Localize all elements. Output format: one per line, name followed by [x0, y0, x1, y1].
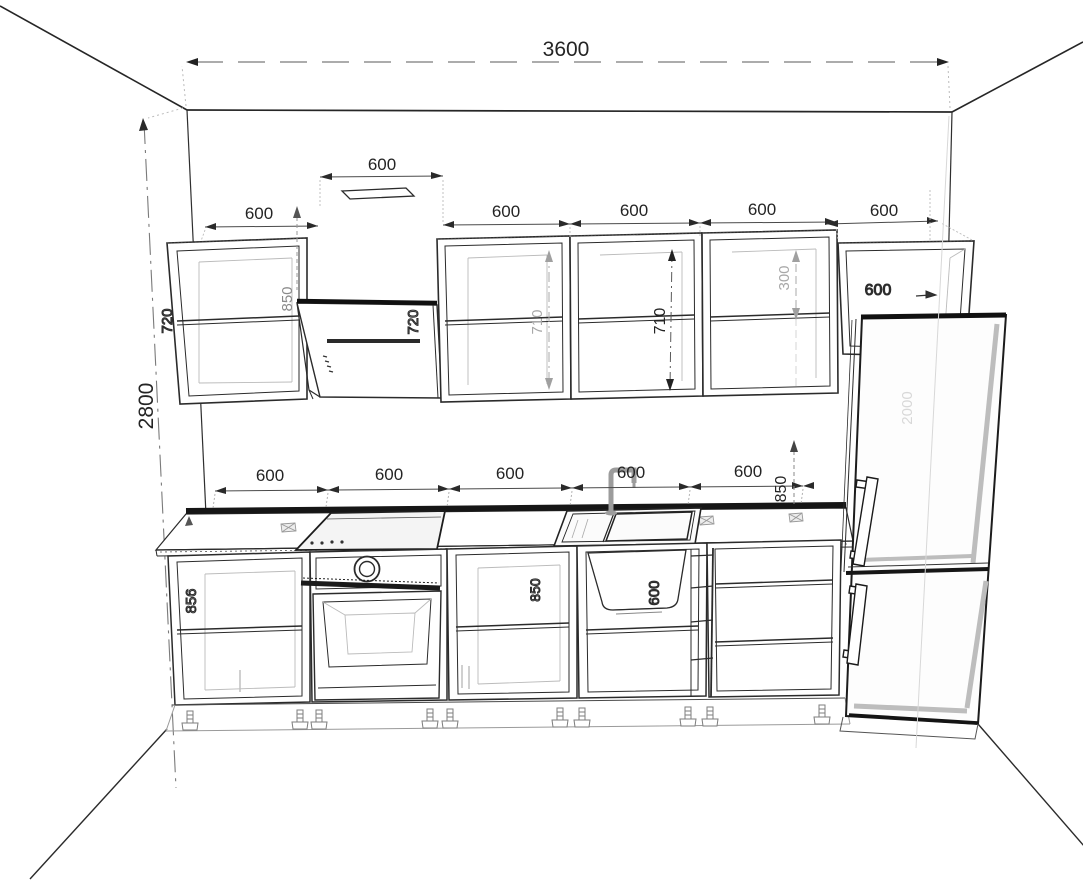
ceiling-corner-right — [952, 42, 1083, 112]
wall-cabinet-4 — [702, 230, 838, 396]
base-cabinet-5 — [691, 540, 841, 697]
base-cabinet-3: 850 — [447, 546, 577, 700]
dim-label-base2-width: 600 — [375, 465, 403, 484]
dim-label-counter-height: 850 — [773, 476, 790, 503]
dim-label-fridge-height: 2000 — [899, 391, 916, 424]
dim-label-base-carcass-height: 856 — [183, 588, 200, 613]
dim-label-fridge-cab-width: 600 — [870, 201, 898, 220]
floor-corner-left — [30, 729, 167, 879]
dim-label-cab1-width: 600 — [245, 204, 273, 223]
dim-label-hood-clearance: 850 — [279, 286, 296, 311]
fridge: 2000 — [840, 116, 1006, 748]
base-cabinet-2-oven-housing — [310, 549, 447, 702]
dim-label-cab2-height: 710 — [529, 309, 546, 334]
dim-label-base5-width: 600 — [734, 462, 762, 481]
dim-label-base4-width: 600 — [617, 463, 645, 482]
dim-label-cab1-height: 720 — [159, 308, 176, 333]
dim-cab1-width: 600 — [201, 204, 318, 241]
dim-label-base3-width: 600 — [496, 464, 524, 483]
wall-cabinet-3 — [570, 233, 703, 399]
adjustable-feet — [182, 705, 830, 730]
dim-label-cab4-shelf-height: 300 — [776, 265, 793, 290]
dim-wall-width: 3600 — [182, 38, 950, 108]
dim-label-cab3-height: 710 — [652, 308, 669, 335]
kitchen-elevation-drawing: 3600 2800 720 600 — [0, 0, 1083, 880]
wall-cabinet-1: 720 — [159, 238, 307, 404]
fridge-top-edge — [861, 315, 1006, 317]
dim-label-cab4-width: 600 — [748, 200, 776, 219]
dim-label-sink-width: 600 — [646, 580, 663, 605]
ceiling-corner-left — [0, 6, 187, 110]
cooker-hood: 720 — [297, 188, 442, 399]
dim-row-base: 600 600 600 600 600 — [213, 462, 814, 508]
hood-handle — [327, 339, 420, 343]
dim-label-base1-width: 600 — [256, 466, 284, 485]
sink — [554, 508, 701, 546]
ceiling-line — [187, 110, 952, 112]
dim-label-base3-faint: 850 — [527, 578, 543, 602]
dim-label-cab3-width: 600 — [620, 201, 648, 220]
dim-label-hood-height: 720 — [405, 309, 422, 334]
dim-label-fridge-cab-depth: 600 — [865, 282, 892, 299]
base-cabinet-1: 856 — [168, 552, 310, 705]
dim-counter-height: 850 — [773, 440, 798, 507]
dim-label-hood-width: 600 — [368, 155, 396, 174]
floor-corner-right — [978, 724, 1083, 846]
dim-label-wall-height: 2800 — [135, 383, 158, 430]
dim-label-wall-width: 3600 — [543, 38, 590, 61]
hood-vent-plate — [342, 188, 414, 199]
dim-label-cab2-width: 600 — [492, 202, 520, 221]
